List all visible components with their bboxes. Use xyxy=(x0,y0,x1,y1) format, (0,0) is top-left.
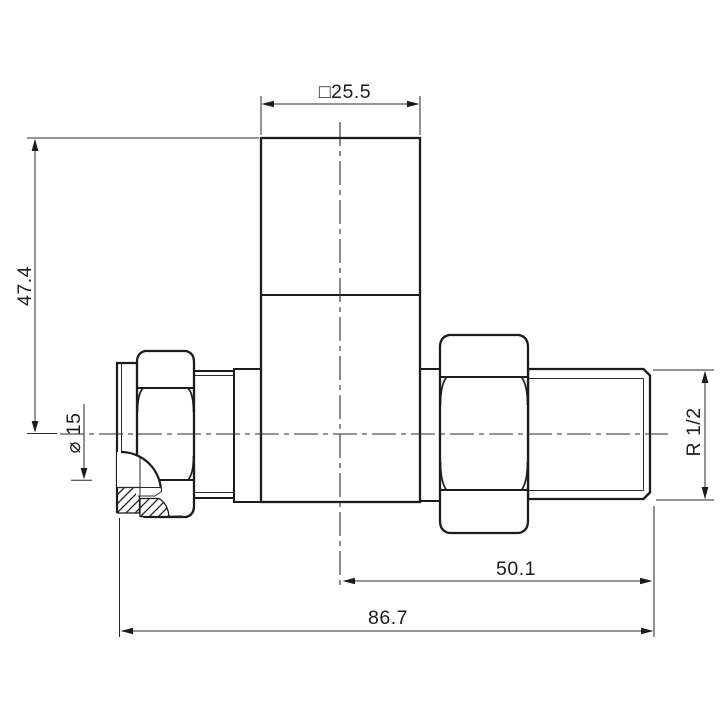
body-collar xyxy=(234,369,261,502)
arrow-left xyxy=(262,101,275,107)
dim-thread-size: R 1/2 xyxy=(653,370,714,500)
arrow-left xyxy=(343,578,356,584)
arrow-right xyxy=(407,101,420,107)
dim-height-label: 47.4 xyxy=(14,266,36,306)
arrow-right xyxy=(641,628,654,634)
drawing-canvas: □25.5 47.4 ⌀ 15 R 1/2 50.1 xyxy=(0,0,720,719)
arrow-left xyxy=(121,628,134,634)
dim-bore-label: ⌀ 15 xyxy=(63,413,85,454)
right-connector-stub xyxy=(420,369,440,501)
dim-center-to-end-label: 50.1 xyxy=(496,558,536,580)
dim-bore-diameter: ⌀ 15 xyxy=(63,404,92,480)
arrow-down xyxy=(32,421,39,433)
arrow-up xyxy=(32,139,39,151)
dim-square-label: □25.5 xyxy=(319,81,371,103)
arrow-down xyxy=(702,487,709,499)
dim-overall-length: 86.7 xyxy=(120,518,654,637)
valve-outline xyxy=(117,138,650,533)
dim-thread-label: R 1/2 xyxy=(683,407,705,456)
arrow-down xyxy=(81,468,88,479)
arrow-up xyxy=(702,371,709,383)
technical-drawing: □25.5 47.4 ⌀ 15 R 1/2 50.1 xyxy=(0,0,720,719)
arrow-right xyxy=(640,578,653,584)
dim-overall-label: 86.7 xyxy=(368,607,408,629)
